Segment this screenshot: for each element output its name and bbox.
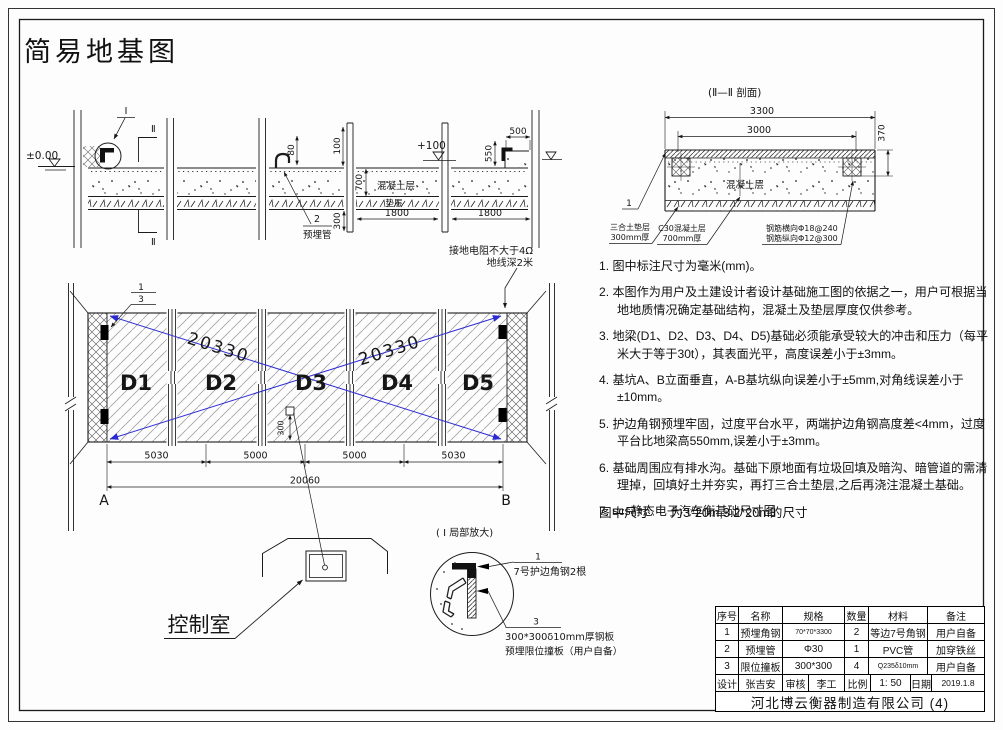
design-label: 设计 [716, 675, 739, 692]
pipe-callout-number: 2 [314, 214, 320, 225]
row3-name: 限位撞板 [739, 658, 783, 675]
detail-mark-label: Ⅰ [125, 106, 128, 117]
detail-label-3a: 300*300δ10mm厚钢板 [505, 630, 614, 643]
row1-note: 用户自备 [928, 624, 984, 641]
col-header-no: 序号 [716, 607, 739, 624]
dim-5030-b: 5030 [441, 451, 465, 462]
cushion-layer-label: 垫层 [385, 198, 402, 209]
signature-row: 设计 张吉安 审核 李工 比例 1: 50 日期 2019.1.8 [716, 675, 984, 692]
c30-spec-line1: C30混凝土层 [658, 223, 706, 233]
edge-angle-steel-section [100, 148, 114, 163]
control-room: 控制室 [164, 539, 388, 639]
detail-title: ( Ⅰ 局部放大) [436, 526, 493, 539]
plan-view: D1 D2 D3 D4 D5 20330 20330 1 3 5030 5000… [64, 283, 558, 565]
date-value: 2019.1.8 [932, 675, 984, 692]
detail-callout-1: 1 [535, 553, 541, 563]
dim-300-plan: 300 [277, 420, 286, 435]
row3-no: 3 [716, 658, 739, 675]
auditor-name: 李工 [809, 675, 845, 692]
corner-b-label: B [501, 493, 511, 509]
note-4: 4. 基坑A、B立面垂直，A-B基坑纵向误差小于±5mm,对角线误差小于±10m… [599, 372, 993, 407]
scale-label: 比例 [845, 675, 871, 692]
cushion-spec-line2: 300mm厚 [611, 233, 650, 242]
module-d2-label: D2 [205, 371, 237, 395]
pipe-callout-label: 预埋管 [303, 229, 332, 241]
dim-700: 700 [355, 174, 365, 191]
plan-callout-3: 3 [138, 295, 144, 305]
dim-370: 370 [878, 124, 888, 141]
audit-label: 审核 [783, 675, 809, 692]
plan-callout-1: 1 [138, 283, 144, 293]
row3-spec: 300*300 [783, 658, 845, 675]
row3-material: Q235δ10mm [869, 658, 928, 675]
rebar-spec-line1: 钢筋横向Φ18@240 [766, 223, 838, 233]
c30-spec-line2: 700mm厚 [663, 234, 702, 243]
note-1: 1. 图中标注尺寸为毫米(mm)。 [599, 258, 993, 275]
note-3: 3. 地梁(D1、D2、D3、D4、D5)基础必须能承受较大的冲击和压力（每平米… [599, 328, 993, 363]
dim-5000-a: 5000 [243, 451, 267, 462]
junction-box [286, 407, 294, 415]
detail-callout-3: 3 [533, 618, 539, 628]
date-label: 日期 [911, 675, 932, 692]
module-d3-label: D3 [295, 371, 327, 395]
dim-1800-a: 1800 [385, 208, 409, 219]
row1-spec: 70*70*3300 [783, 624, 845, 641]
note-2: 2. 本图作为用户及土建设计者设计基础施工图的依据之一，用户可根据当地地质情况确… [599, 284, 993, 319]
dim-1800-b: 1800 [478, 208, 502, 219]
module-d4-label: D4 [381, 371, 413, 395]
row1-material: 等边7号角钢 [869, 624, 928, 641]
dim-550: 550 [485, 145, 495, 162]
col-header-spec: 规格 [783, 607, 845, 624]
dim-5000-b: 5000 [342, 451, 366, 462]
edge-angle-steel-detail [452, 563, 476, 578]
corner-a-label: A [99, 493, 109, 509]
row1-qty: 2 [845, 624, 869, 641]
module-d5-label: D5 [462, 371, 494, 395]
row2-no: 2 [716, 641, 739, 658]
scale-value: 1: 50 [871, 675, 911, 692]
row2-material: PVC管 [869, 641, 928, 658]
row2-qty: 1 [845, 641, 869, 658]
dim-5030-a: 5030 [144, 451, 168, 462]
dim-500: 500 [509, 127, 526, 137]
control-room-label: 控制室 [168, 613, 231, 637]
detail-label-1: 7号护边角钢2根 [514, 565, 587, 578]
rebar-spec-line2: 钢筋纵向Φ12@300 [766, 233, 838, 243]
dim-100: 100 [333, 137, 343, 154]
row2-spec: Φ30 [783, 641, 845, 658]
detail-label-3b: 预埋限位撞板（用户自备） [505, 645, 623, 658]
drawing-sheet: 简易地基图 [0, 0, 1003, 730]
notes-list: 1. 图中标注尺寸为毫米(mm)。 2. 本图作为用户及土建设计者设计基础施工图… [599, 258, 993, 530]
section-mark-top: Ⅱ [151, 124, 156, 135]
dim-80: 80 [287, 144, 297, 156]
row2-note: 加穿铁丝 [928, 641, 984, 658]
level-100-label: +100 [417, 140, 446, 152]
level-zero-label: ±0.00 [26, 150, 58, 162]
section-ii-title: (Ⅱ—Ⅱ 剖面) [708, 86, 761, 99]
title-block: 序号 名称 规格 数量 材料 备注 1 预埋角钢 70*70*3300 2 等边… [715, 606, 985, 712]
grounding-note-line2: 地线深2米 [487, 256, 533, 269]
col-header-material: 材料 [869, 607, 928, 624]
section-concrete-label: 混凝土层 [726, 179, 764, 191]
cushion-spec-line1: 三合土垫层 [610, 222, 650, 232]
row1-name: 预埋角钢 [739, 624, 783, 641]
col-header-note: 备注 [928, 607, 984, 624]
dim-3300: 3300 [750, 106, 774, 117]
dim-total-20060: 20060 [290, 476, 320, 487]
row3-note: 用户自备 [928, 658, 984, 675]
col-header-qty: 数量 [845, 607, 869, 624]
dim-3000: 3000 [747, 125, 771, 136]
note-5: 5. 护边角钢预埋牢固，过度平台水平，两端护边角钢高度差<4mm，过度平台比地梁… [599, 416, 993, 451]
detail-view: ( Ⅰ 局部放大) 1 7号护边角钢2根 3 300*300δ10mm厚钢板 预… [431, 526, 623, 658]
bom-table: 序号 名称 规格 数量 材料 备注 1 预埋角钢 70*70*3300 2 等边… [716, 607, 984, 675]
row1-no: 1 [716, 624, 739, 641]
module-d1-label: D1 [120, 371, 152, 395]
section-leader-1: 1 [626, 199, 632, 209]
designer-name: 张吉安 [739, 675, 783, 692]
row2-name: 预埋管 [739, 641, 783, 658]
note-6: 6. 基础周围应有排水沟。基础下原地面有垃圾回填及暗沟、暗管道的需清理掉，回填好… [599, 460, 993, 495]
col-header-name: 名称 [739, 607, 783, 624]
section-mark-bottom: Ⅱ [151, 237, 156, 248]
row3-qty: 4 [845, 658, 869, 675]
angle-profile-1 [447, 578, 466, 599]
dim-pipe-300: 300 [333, 212, 343, 229]
grounding-note-line1: 接地电阻不大于4Ω [449, 244, 533, 257]
elevation-view: ±0.00 Ⅰ Ⅱ Ⅱ +100 80 100 700 300 1800 180… [26, 106, 562, 308]
section-ii-view: (Ⅱ—Ⅱ 剖面) 3300 3000 370 混凝土层 1 三合土垫层 300m… [609, 86, 893, 245]
company-name: 河北博云衡器制造有限公司 (4) [716, 692, 984, 711]
angle-profile-2 [443, 601, 454, 617]
size-note: 图中尺寸 为3*20m,3.2*20m的尺寸 [599, 502, 808, 521]
concrete-layer-label: 混凝土层 [377, 180, 415, 192]
